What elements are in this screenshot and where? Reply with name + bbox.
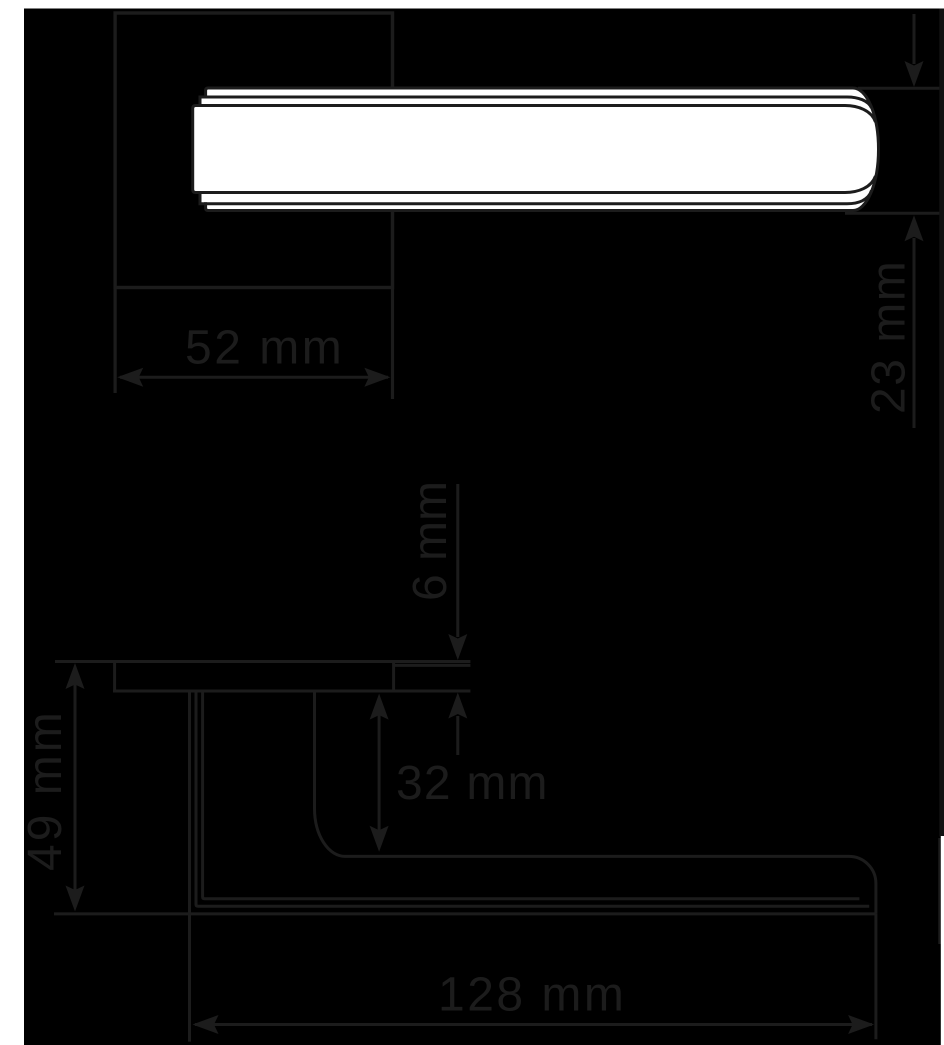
svg-text:6 mm: 6 mm (404, 481, 457, 601)
svg-text:32 mm: 32 mm (396, 757, 549, 810)
svg-text:52 mm: 52 mm (185, 322, 344, 375)
svg-text:23 mm: 23 mm (863, 260, 916, 414)
svg-text:49 mm: 49 mm (19, 709, 72, 871)
svg-text:128 mm: 128 mm (438, 969, 626, 1022)
